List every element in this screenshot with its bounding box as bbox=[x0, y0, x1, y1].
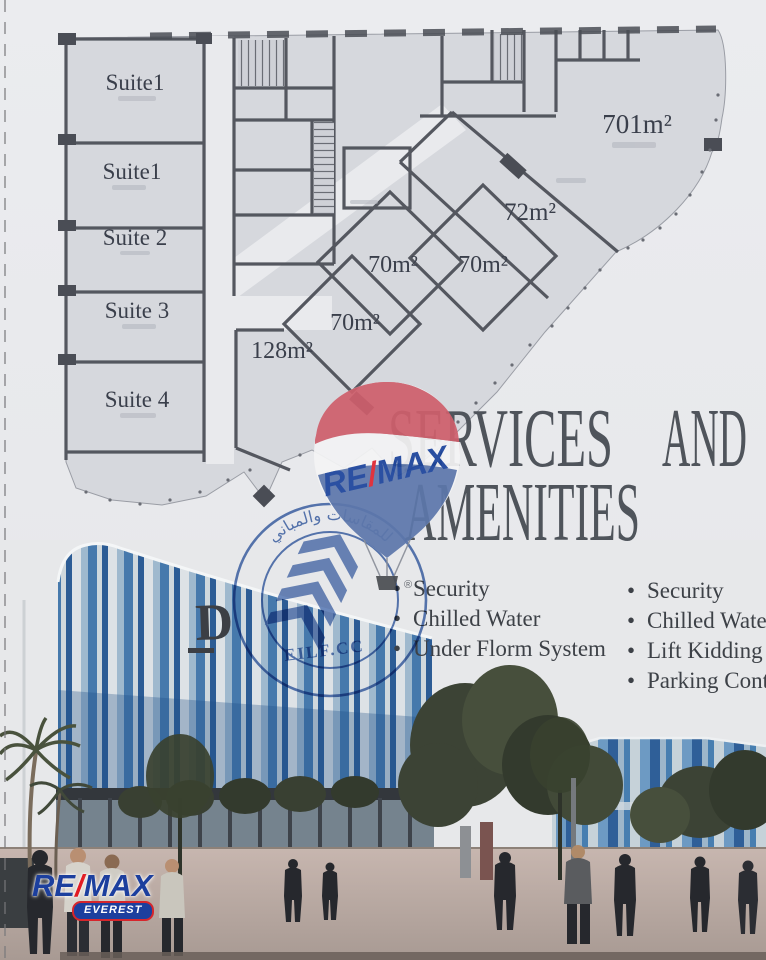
area-label: 70m² bbox=[458, 252, 508, 278]
suite-label: Suite1 bbox=[103, 159, 162, 184]
remax-wordmark: RE/MAX bbox=[32, 870, 154, 901]
everest-banner: EVEREST bbox=[72, 901, 154, 921]
area-label: 72m² bbox=[504, 199, 556, 226]
scan-edge-strip bbox=[60, 952, 766, 960]
stairs bbox=[494, 34, 522, 80]
service-item: Chilled Water bbox=[627, 606, 766, 636]
balloon-basket bbox=[376, 576, 398, 590]
area-label: 70m² bbox=[368, 252, 418, 278]
scanned-brochure-page: D bbox=[0, 0, 766, 960]
service-item: Security bbox=[627, 576, 766, 606]
suite-label: Suite 4 bbox=[105, 387, 170, 412]
service-item: Parking Cont bbox=[627, 666, 766, 696]
stairs bbox=[314, 122, 334, 214]
remax-everest-logo: RE/MAX EVEREST bbox=[32, 870, 154, 921]
service-item: Lift Kidding bbox=[627, 636, 766, 666]
area-label: 128m² bbox=[251, 338, 313, 364]
wordmark-max: MAX bbox=[84, 868, 153, 903]
stamp-company-name: EILF.CC bbox=[283, 636, 366, 665]
services-list-right: Security Chilled Water Lift Kidding Park… bbox=[627, 576, 766, 696]
registered-mark: ® bbox=[404, 579, 412, 591]
suite-label: Suite 3 bbox=[105, 298, 170, 323]
scan-fold-line bbox=[4, 0, 6, 960]
wordmark-re: RE bbox=[32, 868, 75, 903]
stairs bbox=[238, 40, 284, 86]
remax-balloon-logo: RE/MAX ® bbox=[300, 380, 475, 595]
balloon-red-top bbox=[316, 382, 459, 442]
area-label: 70m² bbox=[330, 310, 380, 336]
suite-label: Suite 2 bbox=[103, 225, 168, 250]
area-label: 701m² bbox=[602, 109, 672, 139]
suite-label: Suite1 bbox=[106, 70, 165, 95]
wordmark-slash: / bbox=[75, 868, 84, 903]
